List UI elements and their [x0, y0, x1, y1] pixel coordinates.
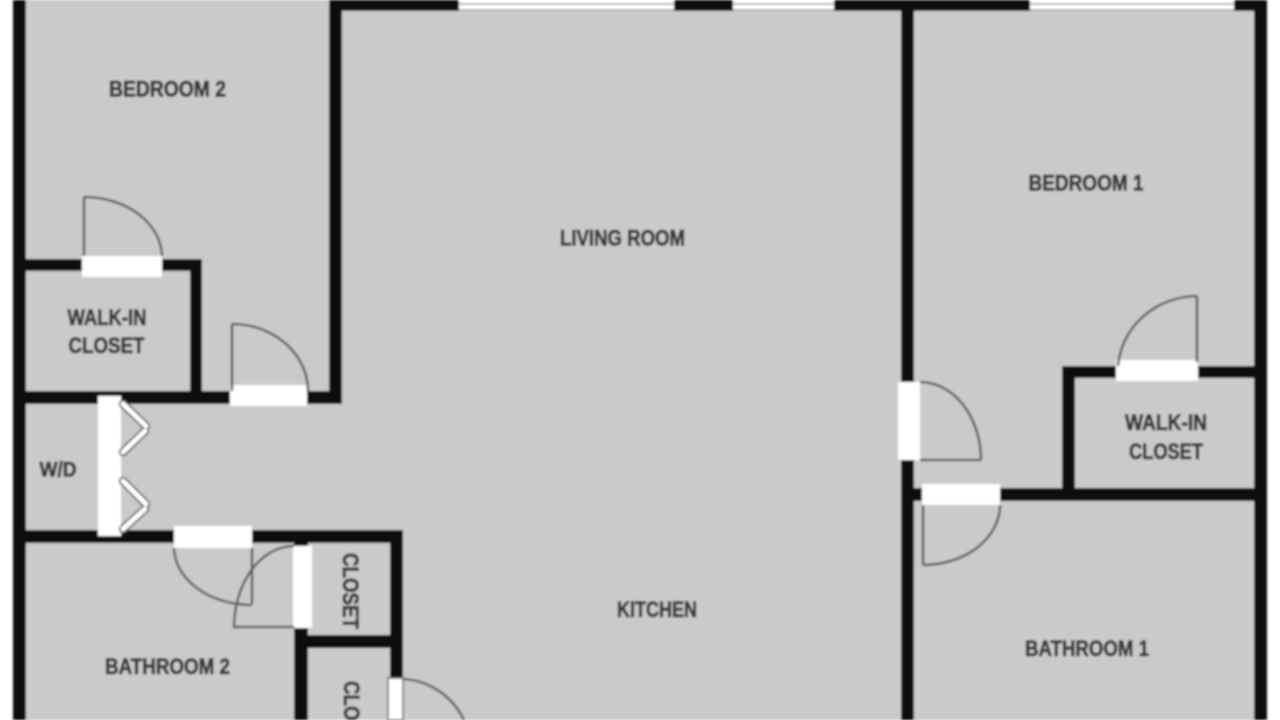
svg-text:W/D: W/D — [40, 459, 77, 482]
svg-text:KITCHEN: KITCHEN — [617, 597, 697, 622]
svg-text:WALK-IN: WALK-IN — [68, 305, 147, 330]
svg-text:CLOSET: CLOSET — [338, 553, 363, 629]
svg-text:BATHROOM 2: BATHROOM 2 — [105, 654, 230, 679]
svg-text:CLOSET: CLOSET — [69, 333, 145, 358]
svg-text:LIVING ROOM: LIVING ROOM — [560, 226, 685, 251]
svg-text:BATHROOM 1: BATHROOM 1 — [1025, 636, 1149, 661]
svg-text:WALK-IN: WALK-IN — [1125, 410, 1207, 435]
svg-text:BEDROOM 1: BEDROOM 1 — [1029, 171, 1144, 196]
svg-text:BEDROOM 2: BEDROOM 2 — [109, 77, 226, 102]
svg-text:CLOSET: CLOSET — [1129, 439, 1203, 464]
svg-text:CLOSET: CLOSET — [339, 681, 364, 720]
